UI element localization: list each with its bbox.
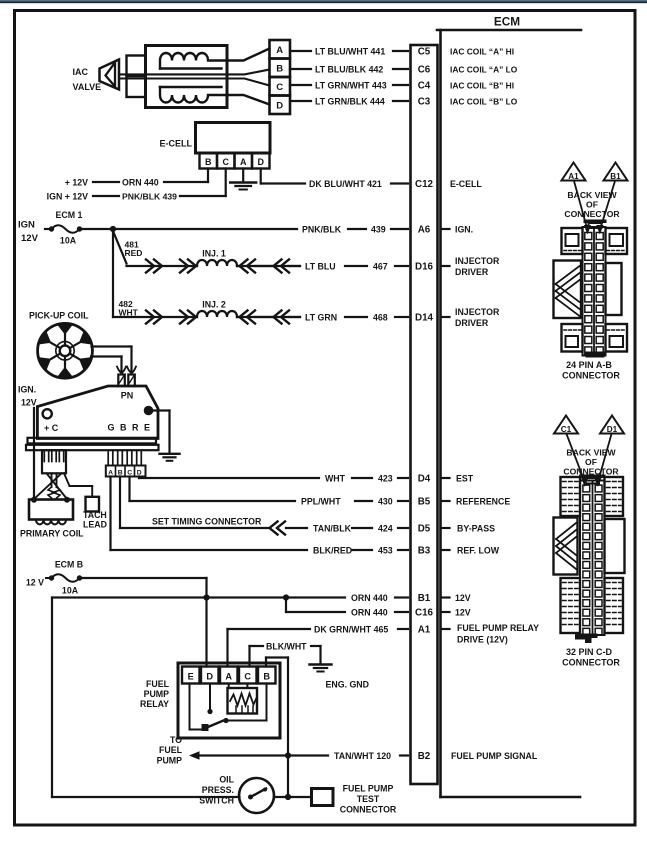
svg-text:CONNECTOR: CONNECTOR — [340, 805, 397, 815]
svg-text:467: 467 — [373, 261, 388, 271]
svg-text:IGN + 12V: IGN + 12V — [47, 192, 88, 202]
svg-text:PN: PN — [121, 391, 134, 401]
svg-text:453: 453 — [378, 545, 393, 555]
svg-text:B2: B2 — [418, 751, 431, 762]
svg-text:PICK-UP COIL: PICK-UP COIL — [29, 311, 89, 321]
svg-text:FUEL: FUEL — [159, 745, 183, 755]
svg-text:D: D — [206, 671, 213, 681]
svg-text:ORN 440: ORN 440 — [351, 607, 388, 617]
svg-text:PNK/BLK 439: PNK/BLK 439 — [122, 192, 177, 202]
svg-text:12 V: 12 V — [26, 578, 44, 588]
svg-text:A: A — [276, 45, 283, 56]
svg-text:ECM B: ECM B — [55, 560, 83, 570]
svg-text:B3: B3 — [418, 546, 431, 557]
svg-text:TEST: TEST — [357, 794, 380, 804]
svg-text:SWITCH: SWITCH — [199, 796, 234, 806]
svg-text:WHT: WHT — [325, 473, 346, 483]
svg-text:C5: C5 — [418, 47, 431, 58]
svg-text:IAC: IAC — [73, 67, 89, 77]
svg-text:D: D — [257, 157, 264, 167]
svg-text:32 PIN C-D: 32 PIN C-D — [566, 647, 613, 657]
svg-text:CONNECTOR: CONNECTOR — [562, 658, 620, 668]
svg-text:OIL: OIL — [219, 775, 234, 785]
svg-text:IGN.: IGN. — [455, 225, 473, 235]
svg-text:D: D — [137, 469, 142, 476]
svg-text:IAC COIL “B” LO: IAC COIL “B” LO — [450, 97, 518, 107]
svg-text:A1: A1 — [418, 624, 431, 635]
svg-text:423: 423 — [378, 473, 393, 483]
svg-text:DK GRN/WHT 465: DK GRN/WHT 465 — [314, 624, 388, 634]
svg-text:C3: C3 — [418, 97, 431, 108]
svg-text:D5: D5 — [418, 524, 431, 535]
svg-text:PRESS.: PRESS. — [202, 785, 234, 795]
svg-text:439: 439 — [371, 224, 386, 234]
svg-text:C1: C1 — [561, 425, 572, 434]
svg-text:E-CELL: E-CELL — [450, 179, 482, 189]
svg-text:RELAY: RELAY — [140, 699, 169, 709]
svg-text:12V: 12V — [21, 233, 39, 244]
svg-text:D16: D16 — [415, 262, 434, 273]
svg-text:LT BLU: LT BLU — [305, 261, 336, 271]
svg-text:A1: A1 — [568, 172, 579, 181]
svg-text:424: 424 — [378, 523, 393, 533]
svg-text:DRIVER: DRIVER — [455, 318, 489, 328]
svg-text:C: C — [244, 671, 251, 681]
svg-text:LEAD: LEAD — [83, 520, 107, 530]
svg-text:PUMP: PUMP — [144, 689, 170, 699]
svg-text:FUEL PUMP SIGNAL: FUEL PUMP SIGNAL — [451, 751, 538, 761]
svg-text:ECM 1: ECM 1 — [56, 210, 83, 220]
svg-text:INJ. 1: INJ. 1 — [202, 249, 226, 259]
svg-text:430: 430 — [378, 496, 393, 506]
svg-text:12V: 12V — [21, 398, 37, 408]
svg-text:TAN/BLK: TAN/BLK — [313, 523, 352, 533]
svg-text:INJECTOR: INJECTOR — [455, 256, 500, 266]
svg-text:TACH: TACH — [83, 510, 107, 520]
svg-text:OF: OF — [585, 457, 597, 467]
svg-text:24 PIN A-B: 24 PIN A-B — [566, 360, 612, 370]
svg-text:B5: B5 — [418, 497, 431, 508]
svg-text:BLK/WHT: BLK/WHT — [266, 642, 307, 652]
svg-text:PUMP: PUMP — [157, 756, 183, 766]
svg-text:D4: D4 — [418, 474, 431, 485]
svg-text:LT GRN: LT GRN — [305, 312, 337, 322]
svg-text:A6: A6 — [418, 225, 431, 236]
svg-text:G B R E: G B R E — [108, 423, 152, 433]
svg-text:RED: RED — [125, 248, 143, 258]
svg-text:+ C: + C — [44, 423, 59, 433]
svg-text:PPL/WHT: PPL/WHT — [301, 496, 341, 506]
svg-text:REF. LOW: REF. LOW — [457, 546, 500, 556]
svg-text:12V: 12V — [455, 607, 471, 617]
svg-text:VALVE: VALVE — [73, 82, 102, 92]
svg-text:TO: TO — [170, 735, 182, 745]
svg-text:FUEL PUMP RELAY: FUEL PUMP RELAY — [457, 623, 539, 633]
svg-text:D14: D14 — [415, 313, 434, 324]
svg-text:ENG. GND: ENG. GND — [326, 680, 370, 690]
svg-text:CONNECTOR: CONNECTOR — [564, 209, 620, 219]
svg-text:IGN: IGN — [18, 220, 35, 231]
svg-text:B: B — [276, 64, 283, 75]
svg-text:ORN 440: ORN 440 — [122, 178, 159, 188]
svg-text:IAC COIL “A” HI: IAC COIL “A” HI — [450, 47, 514, 57]
svg-text:C12: C12 — [415, 179, 434, 190]
svg-text:ECM: ECM — [494, 15, 520, 29]
svg-text:LT GRN/BLK 444: LT GRN/BLK 444 — [315, 96, 385, 106]
svg-text:DRIVER: DRIVER — [455, 267, 489, 277]
svg-text:B: B — [263, 671, 270, 681]
svg-text:E: E — [188, 671, 194, 681]
svg-text:12V: 12V — [455, 593, 471, 603]
svg-text:A: A — [225, 671, 232, 681]
svg-text:C: C — [276, 82, 283, 93]
svg-text:FUEL PUMP: FUEL PUMP — [343, 784, 394, 794]
svg-text:468: 468 — [373, 312, 388, 322]
svg-text:EST: EST — [456, 474, 474, 484]
svg-text:LT BLU/BLK 442: LT BLU/BLK 442 — [315, 64, 383, 74]
svg-text:TAN/WHT 120: TAN/WHT 120 — [334, 751, 391, 761]
svg-text:A: A — [240, 157, 247, 167]
svg-text:OF: OF — [586, 200, 598, 210]
svg-text:C6: C6 — [418, 65, 431, 76]
svg-text:10A: 10A — [60, 236, 77, 246]
svg-text:CONNECTOR: CONNECTOR — [562, 371, 620, 381]
svg-text:C16: C16 — [415, 607, 434, 618]
svg-text:B1: B1 — [418, 593, 431, 604]
svg-text:LT GRN/WHT 443: LT GRN/WHT 443 — [315, 80, 387, 90]
svg-text:INJECTOR: INJECTOR — [455, 307, 500, 317]
svg-text:IGN.: IGN. — [18, 385, 36, 395]
svg-text:B: B — [205, 157, 212, 167]
svg-text:LT BLU/WHT 441: LT BLU/WHT 441 — [315, 46, 385, 56]
svg-text:C4: C4 — [418, 81, 431, 92]
svg-text:+ 12V: + 12V — [65, 178, 88, 188]
svg-text:DK BLU/WHT 421: DK BLU/WHT 421 — [309, 179, 382, 189]
svg-text:BLK/RED: BLK/RED — [313, 545, 352, 555]
svg-text:SET TIMING CONNECTOR: SET TIMING CONNECTOR — [152, 517, 262, 527]
svg-text:PRIMARY COIL: PRIMARY COIL — [20, 529, 84, 539]
svg-text:ORN 440: ORN 440 — [351, 593, 388, 603]
svg-text:D1: D1 — [607, 425, 618, 434]
svg-text:FUEL: FUEL — [146, 679, 170, 689]
svg-text:C: C — [222, 157, 229, 167]
svg-text:E-CELL: E-CELL — [160, 139, 193, 149]
svg-text:C: C — [127, 469, 132, 476]
svg-text:B1: B1 — [610, 172, 621, 181]
svg-text:INJ. 2: INJ. 2 — [202, 300, 226, 310]
svg-text:10A: 10A — [62, 586, 79, 596]
svg-text:D: D — [276, 101, 283, 112]
svg-text:PNK/BLK: PNK/BLK — [302, 224, 342, 234]
svg-text:DRIVE (12V): DRIVE (12V) — [457, 635, 508, 645]
svg-text:A: A — [108, 469, 113, 476]
svg-text:IAC COIL “B” HI: IAC COIL “B” HI — [450, 81, 514, 91]
svg-text:B: B — [118, 469, 123, 476]
svg-text:REFERENCE: REFERENCE — [456, 497, 510, 507]
svg-text:IAC COIL “A” LO: IAC COIL “A” LO — [450, 65, 518, 75]
svg-text:BY-PASS: BY-PASS — [457, 524, 495, 534]
svg-text:WHT: WHT — [119, 307, 139, 317]
